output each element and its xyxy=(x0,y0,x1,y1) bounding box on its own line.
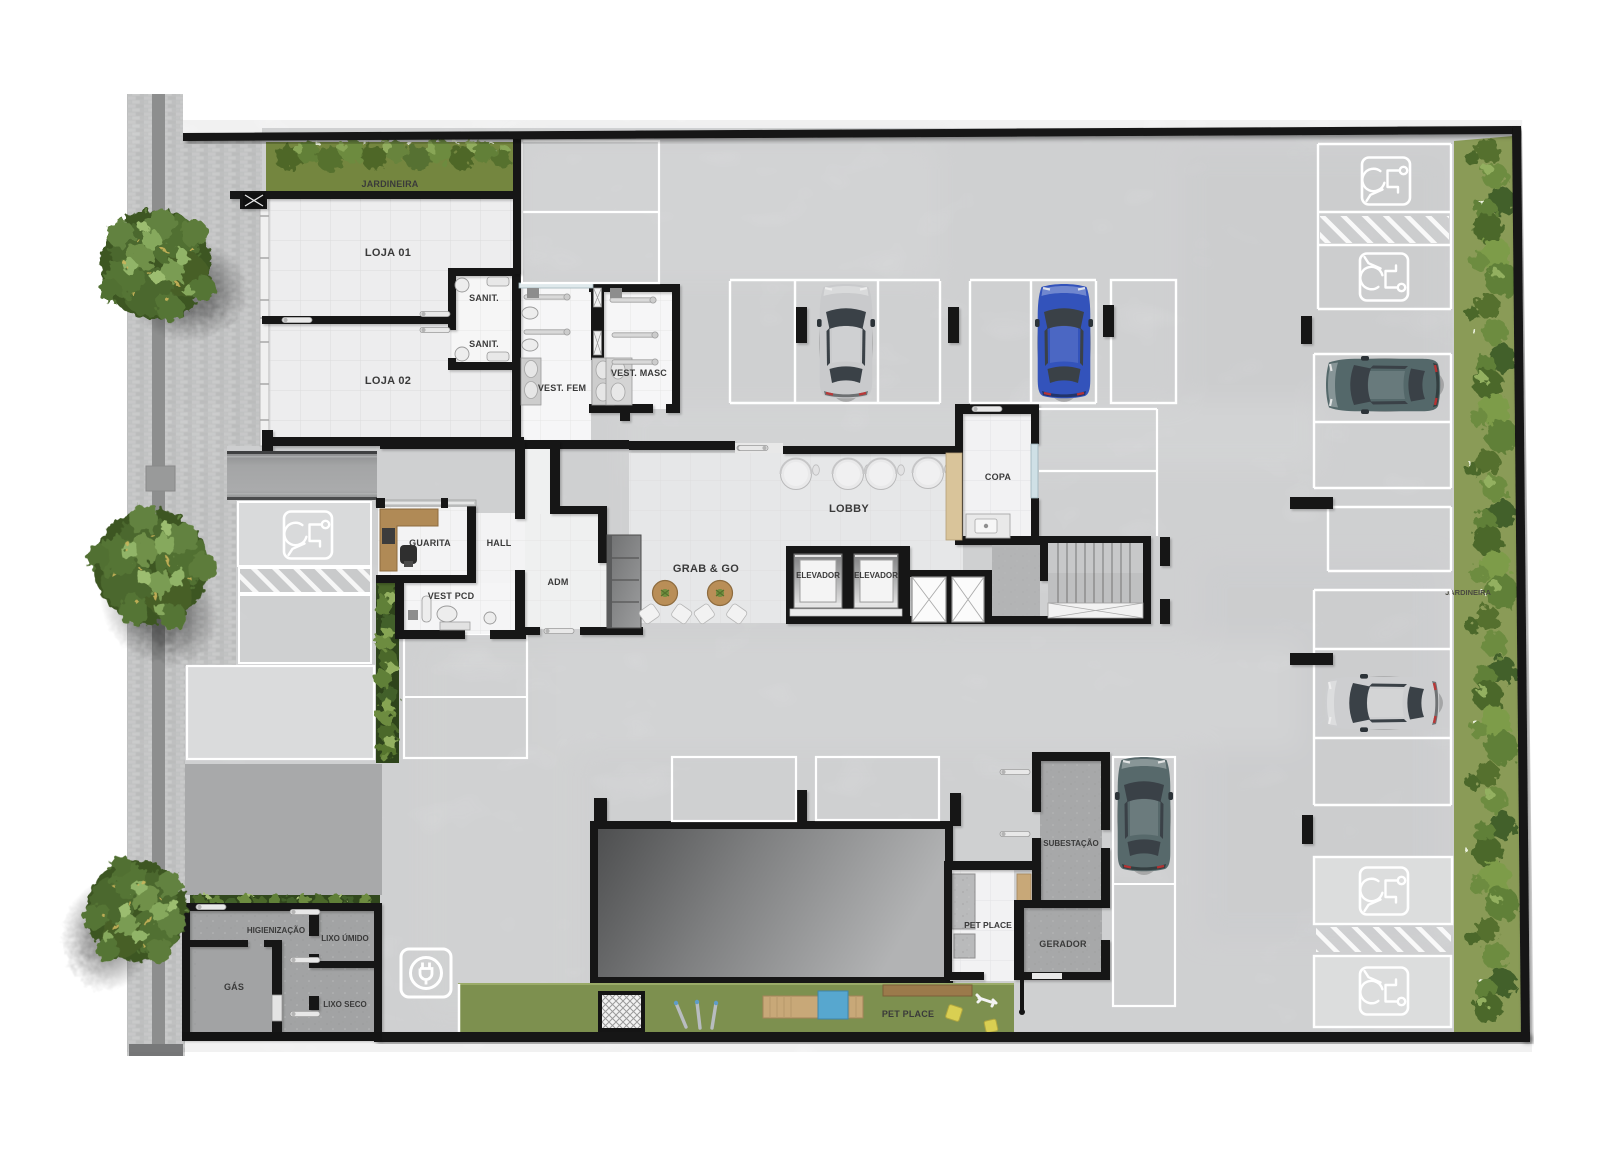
svg-text:VEST PCD: VEST PCD xyxy=(428,591,475,601)
svg-text:SUBESTAÇÃO: SUBESTAÇÃO xyxy=(1043,839,1098,848)
svg-text:LIXO SECO: LIXO SECO xyxy=(323,1000,367,1009)
svg-text:LOJA 01: LOJA 01 xyxy=(365,247,411,259)
svg-text:ELEVADOR: ELEVADOR xyxy=(854,571,898,580)
svg-text:PET PLACE: PET PLACE xyxy=(882,1009,934,1019)
svg-text:ADM: ADM xyxy=(547,577,568,587)
svg-text:PET PLACE: PET PLACE xyxy=(964,920,1012,930)
svg-text:JARDINEIRA: JARDINEIRA xyxy=(361,179,418,189)
svg-text:HALL: HALL xyxy=(487,538,512,548)
svg-text:SANIT.: SANIT. xyxy=(469,293,499,303)
svg-text:VEST. MASC: VEST. MASC xyxy=(611,368,667,378)
svg-text:GRAB & GO: GRAB & GO xyxy=(673,563,739,575)
svg-text:LOBBY: LOBBY xyxy=(829,503,869,515)
svg-text:VEST. FEM: VEST. FEM xyxy=(538,383,586,393)
svg-text:SANIT.: SANIT. xyxy=(469,339,499,349)
svg-text:GERADOR: GERADOR xyxy=(1039,939,1087,949)
svg-text:COPA: COPA xyxy=(985,472,1011,482)
svg-text:ELEVADOR: ELEVADOR xyxy=(796,571,840,580)
svg-text:LIXO ÚMIDO: LIXO ÚMIDO xyxy=(321,934,369,943)
svg-text:LOJA 02: LOJA 02 xyxy=(365,375,411,387)
svg-text:HIGIENIZAÇÃO: HIGIENIZAÇÃO xyxy=(247,926,305,935)
svg-text:GUARITA: GUARITA xyxy=(409,538,451,548)
svg-text:GÁS: GÁS xyxy=(224,982,244,992)
